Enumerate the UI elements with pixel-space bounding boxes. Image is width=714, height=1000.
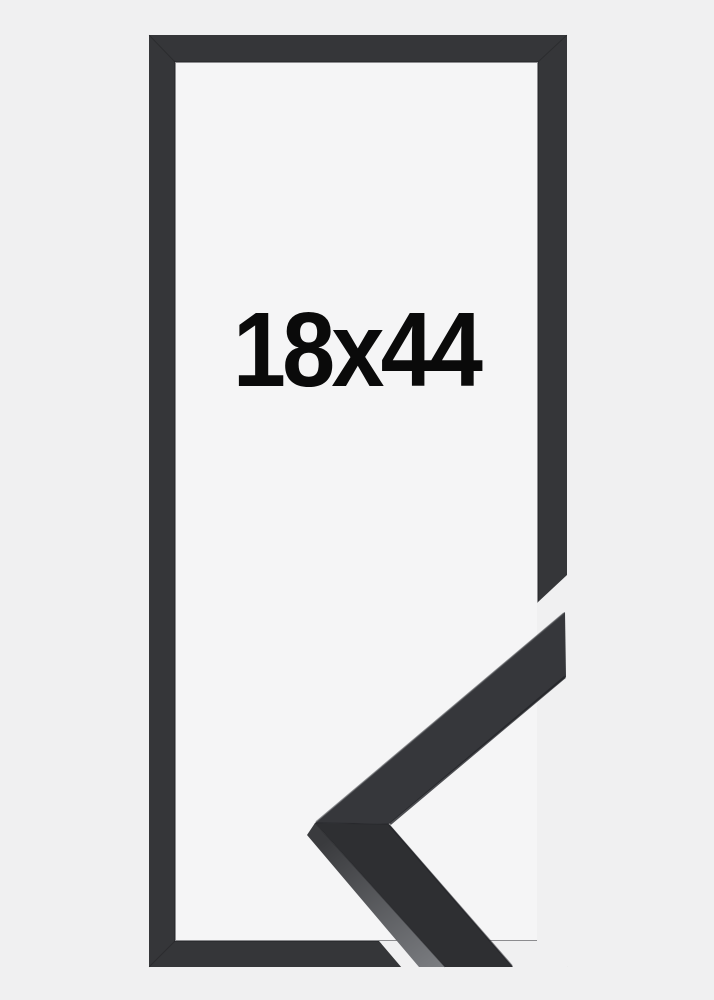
size-label: 18x44 [233,297,479,403]
frame-size-illustration [0,0,714,1000]
product-image: 18x44 [0,0,714,1000]
